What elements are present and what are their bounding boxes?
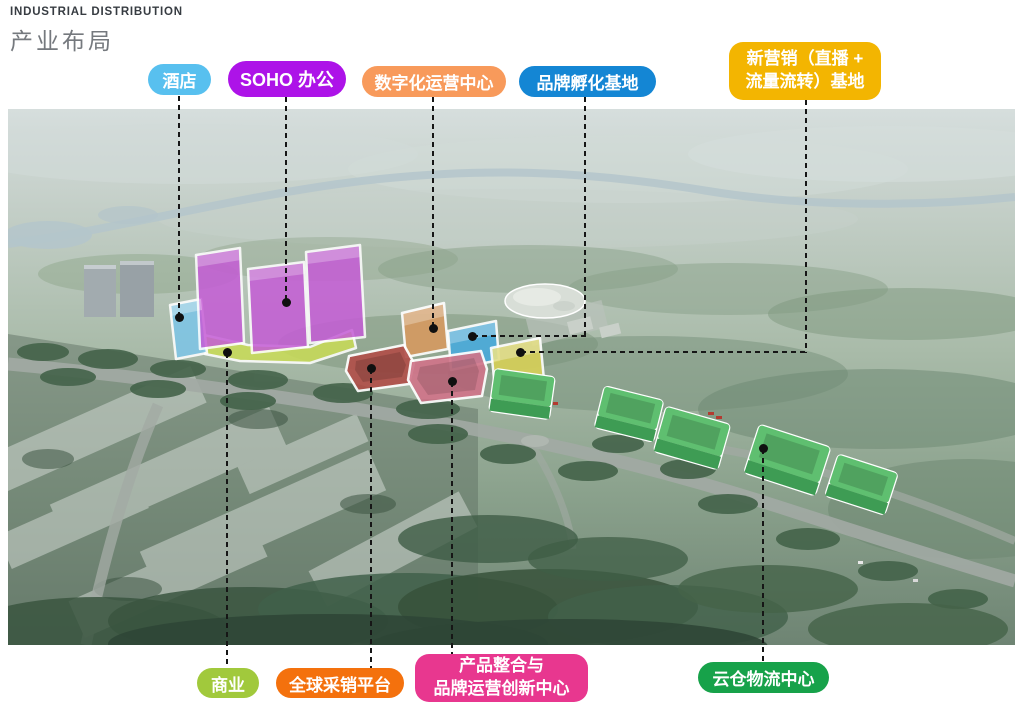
label-soho-office: SOHO 办公 bbox=[228, 61, 346, 97]
label-new-marketing-base-line1: 新营销（直播 + bbox=[747, 48, 864, 71]
label-cloud-warehouse-logistics-center: 云仓物流中心 bbox=[698, 662, 829, 693]
leader-line-cloud-logistics bbox=[762, 449, 764, 662]
aerial-site-rendering bbox=[8, 109, 1015, 645]
label-digital-ops-center: 数字化运营中心 bbox=[362, 66, 506, 97]
label-global-sourcing-platform-text: 全球采销平台 bbox=[289, 671, 391, 696]
anchor-dot-cloud-logistics bbox=[759, 444, 768, 453]
label-new-marketing-base-line2: 流量流转）基地 bbox=[746, 71, 865, 94]
leader-line-new-marketing-horizontal bbox=[521, 351, 807, 353]
label-digital-ops-center-text: 数字化运营中心 bbox=[375, 69, 494, 94]
label-hotel: 酒店 bbox=[148, 64, 211, 95]
anchor-dot-commerce bbox=[223, 348, 232, 357]
page-title-zh: 产业布局 bbox=[10, 22, 114, 56]
label-brand-incubation-base: 品牌孵化基地 bbox=[519, 66, 656, 97]
leader-line-commerce bbox=[226, 353, 228, 668]
label-commerce-text: 商业 bbox=[211, 671, 245, 696]
label-new-marketing-base: 新营销（直播 + 流量流转）基地 bbox=[729, 42, 881, 100]
anchor-dot-hotel bbox=[175, 313, 184, 322]
anchor-dot-digital-ops bbox=[429, 324, 438, 333]
roundabout bbox=[521, 435, 549, 447]
anchor-dot-new-marketing bbox=[516, 348, 525, 357]
label-commerce: 商业 bbox=[197, 668, 259, 698]
leader-line-soho bbox=[285, 97, 287, 303]
anchor-dot-product-integration bbox=[448, 377, 457, 386]
label-product-integration-center-line2: 品牌运营创新中心 bbox=[434, 678, 570, 701]
anchor-dot-global-sourcing bbox=[367, 364, 376, 373]
label-global-sourcing-platform: 全球采销平台 bbox=[276, 668, 404, 698]
label-hotel-text: 酒店 bbox=[163, 67, 197, 92]
leader-line-hotel bbox=[178, 96, 180, 318]
leader-line-digital-ops bbox=[432, 97, 434, 329]
leader-line-brand-horizontal bbox=[473, 335, 586, 337]
label-product-integration-center-line1: 产品整合与 bbox=[459, 655, 544, 678]
anchor-dot-brand-incubation bbox=[468, 332, 477, 341]
leader-line-product-integration bbox=[451, 382, 453, 654]
leader-line-brand-vertical bbox=[584, 97, 586, 337]
label-cloud-warehouse-logistics-center-text: 云仓物流中心 bbox=[713, 665, 815, 690]
anchor-dot-soho bbox=[282, 298, 291, 307]
page-title-en: INDUSTRIAL DISTRIBUTION bbox=[10, 6, 183, 18]
label-soho-office-text: SOHO 办公 bbox=[240, 66, 334, 92]
leader-line-new-marketing-vertical bbox=[805, 100, 807, 353]
label-product-integration-center: 产品整合与 品牌运营创新中心 bbox=[415, 654, 588, 702]
leader-line-global-sourcing bbox=[370, 369, 372, 668]
label-brand-incubation-base-text: 品牌孵化基地 bbox=[537, 69, 639, 94]
